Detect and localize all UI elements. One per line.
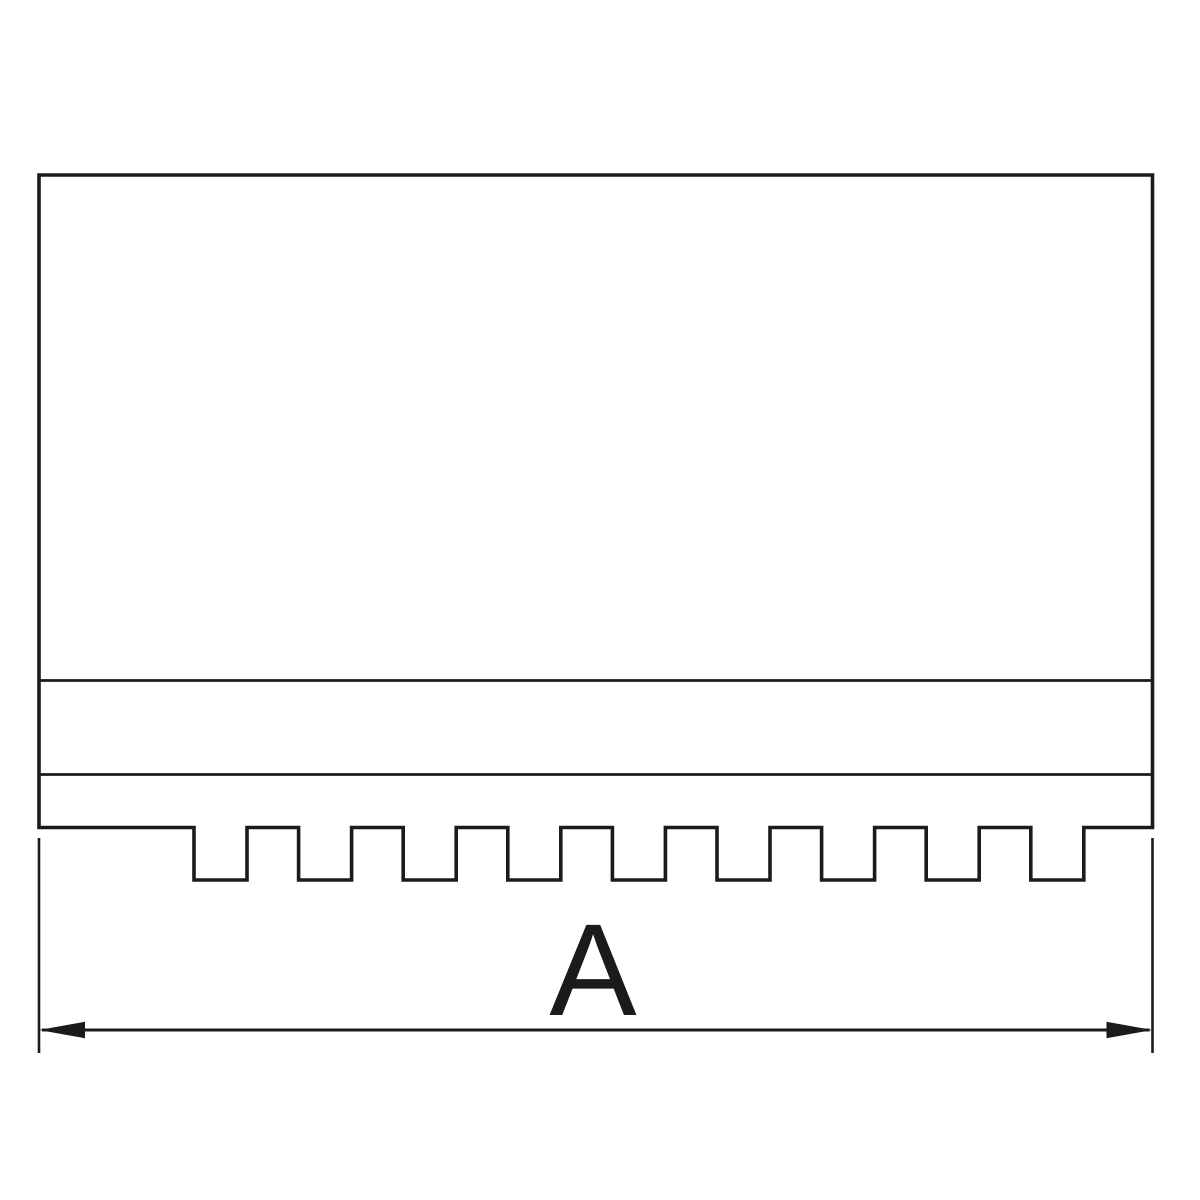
dimension-arrow-right xyxy=(1107,1022,1153,1038)
dimension-label-a: A xyxy=(549,896,637,1043)
dimension-arrow-left xyxy=(39,1022,85,1038)
technical-drawing-canvas: A xyxy=(0,0,1200,1200)
technical-drawing-page: A xyxy=(0,0,1200,1200)
